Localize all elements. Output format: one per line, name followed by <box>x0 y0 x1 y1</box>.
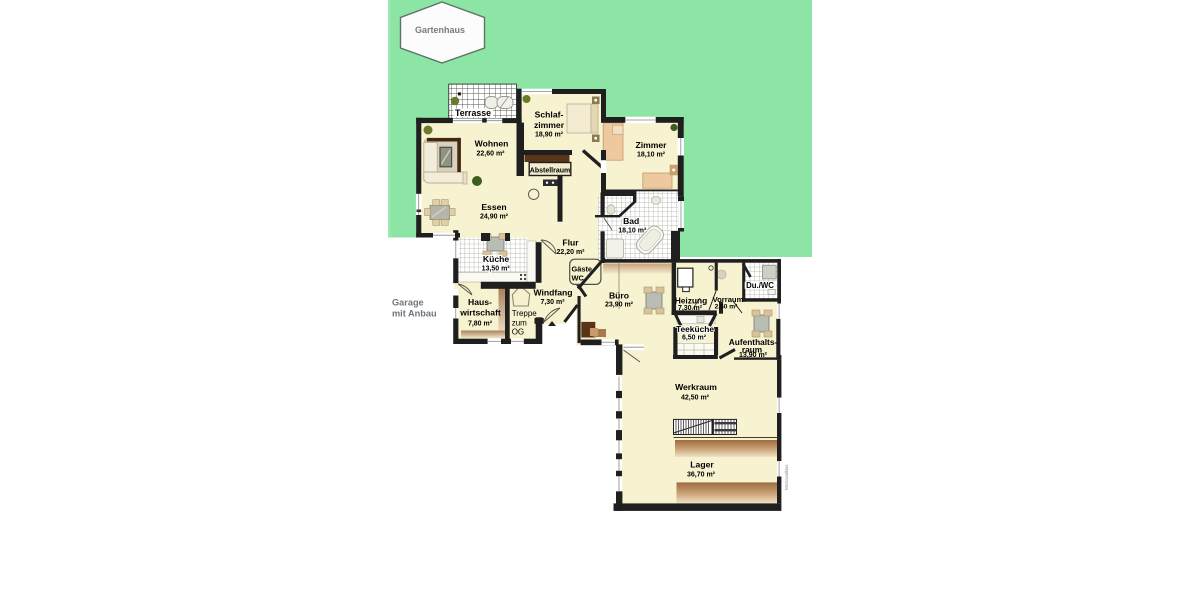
svg-text:Zimmer: Zimmer <box>635 140 667 150</box>
svg-text:Du./WC: Du./WC <box>746 281 774 290</box>
svg-text:mit Anbau: mit Anbau <box>392 309 437 319</box>
svg-text:23,90 m²: 23,90 m² <box>605 302 634 309</box>
svg-text:42,50 m²: 42,50 m² <box>681 394 710 401</box>
svg-text:Büro: Büro <box>609 291 629 301</box>
svg-text:18,10 m²: 18,10 m² <box>637 152 666 159</box>
svg-text:Abstellraum: Abstellraum <box>530 168 570 175</box>
svg-text:Teeküche: Teeküche <box>676 324 714 334</box>
svg-text:22,20 m²: 22,20 m² <box>556 249 585 256</box>
svg-text:13,50 m²: 13,50 m² <box>482 266 511 273</box>
svg-text:Flur: Flur <box>562 237 579 247</box>
svg-text:7,80 m²: 7,80 m² <box>468 320 493 327</box>
svg-text:18,90 m²: 18,90 m² <box>535 131 564 138</box>
svg-text:wirtschaft: wirtschaft <box>459 308 501 318</box>
svg-text:Lager: Lager <box>690 459 714 469</box>
svg-text:13,90 m²: 13,90 m² <box>739 352 768 359</box>
svg-text:WC: WC <box>572 274 585 283</box>
svg-text:Heizung: Heizung <box>675 295 708 305</box>
svg-text:Haus-: Haus- <box>468 297 492 307</box>
svg-text:Gartenhaus: Gartenhaus <box>415 25 465 35</box>
svg-text:18,10 m²: 18,10 m² <box>618 228 647 235</box>
svg-text:Windfang: Windfang <box>533 287 572 297</box>
svg-text:36,70 m²: 36,70 m² <box>687 471 716 478</box>
svg-text:Treppe: Treppe <box>512 309 538 318</box>
svg-text:Wohnen: Wohnen <box>475 139 509 149</box>
svg-text:Werkraum: Werkraum <box>675 382 717 392</box>
svg-text:Schlaf-: Schlaf- <box>535 110 564 120</box>
svg-text:2,50 m²: 2,50 m² <box>715 303 739 310</box>
svg-text:Terrasse: Terrasse <box>455 108 491 118</box>
svg-text:Garage: Garage <box>392 298 424 308</box>
svg-text:Essen: Essen <box>481 202 506 212</box>
svg-text:OG: OG <box>512 328 524 337</box>
svg-text:22,60 m²: 22,60 m² <box>476 150 505 157</box>
svg-text:7,30 m²: 7,30 m² <box>540 299 565 306</box>
svg-text:Küche: Küche <box>483 254 509 264</box>
svg-text:zimmer: zimmer <box>534 120 565 130</box>
svg-text:Bad: Bad <box>623 216 639 226</box>
svg-text:zum: zum <box>512 319 527 328</box>
svg-text:Gäste: Gäste <box>572 265 593 274</box>
svg-text:24,90 m²: 24,90 m² <box>480 214 509 221</box>
svg-text:7,30 m²: 7,30 m² <box>678 305 703 312</box>
svg-text:McGrundriss: McGrundriss <box>784 464 789 490</box>
svg-text:6,50 m²: 6,50 m² <box>682 335 707 342</box>
